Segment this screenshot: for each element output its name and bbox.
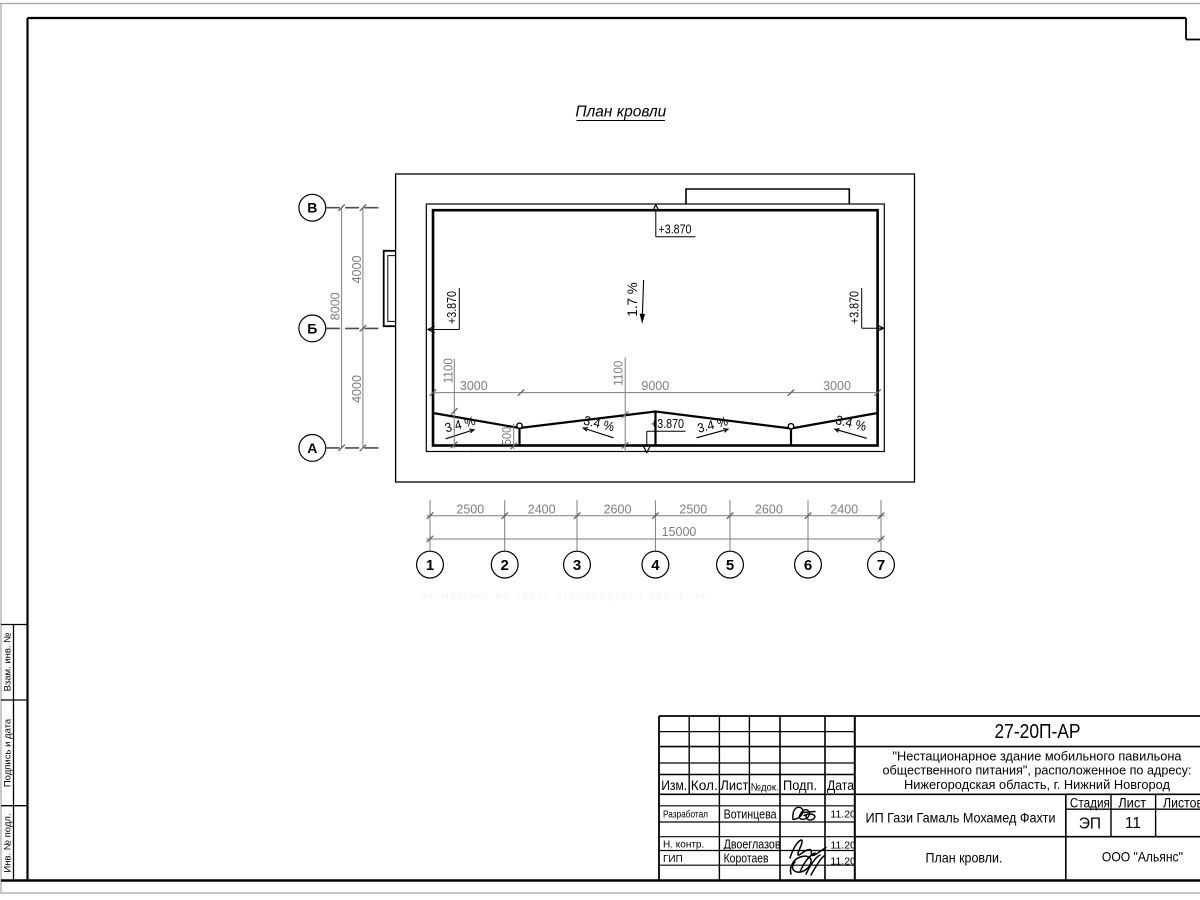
svg-text:2500: 2500 [679,502,707,516]
svg-text:Н. контр.: Н. контр. [663,839,704,850]
svg-text:9000: 9000 [641,379,669,393]
svg-text:ИП Гази Гамаль Мохамед Фахти: ИП Гази Гамаль Мохамед Фахти [866,811,1056,826]
svg-text:11: 11 [1125,815,1141,832]
svg-text:размещено на сайте стройпортал: размещено на сайте стройпортала проектов [420,591,707,602]
svg-text:общественного питания", распол: общественного питания", расположенное по… [883,763,1192,778]
svg-text:4: 4 [651,557,660,574]
svg-text:1100: 1100 [612,361,626,386]
svg-text:1100: 1100 [442,358,456,383]
svg-text:6: 6 [804,557,812,574]
svg-text:5: 5 [726,557,734,574]
svg-text:"Нестационарное здание мобильн: "Нестационарное здание мобильного павиль… [893,748,1183,763]
svg-text:2600: 2600 [604,502,632,516]
svg-text:План кровли.: План кровли. [926,850,1003,866]
svg-text:ООО "Альянс": ООО "Альянс" [1102,848,1183,864]
svg-text:Подпись и дата: Подпись и дата [3,718,14,787]
svg-text:+3.870: +3.870 [847,291,862,324]
svg-text:Взам. инв. №: Взам. инв. № [3,633,14,692]
svg-text:3: 3 [573,557,581,574]
svg-text:ГИП: ГИП [663,854,683,865]
svg-text:ЭП: ЭП [1079,815,1101,832]
svg-text:Лист: Лист [720,778,748,793]
svg-text:3000: 3000 [460,379,488,393]
svg-text:План кровли: План кровли [575,104,666,121]
svg-text:1.7 %: 1.7 % [625,282,640,317]
svg-text:Подп.: Подп. [783,778,817,793]
svg-text:2400: 2400 [830,502,858,516]
svg-text:27-20П-АР: 27-20П-АР [995,721,1081,743]
svg-text:11.20: 11.20 [830,840,856,852]
svg-text:2: 2 [501,557,509,574]
svg-text:Кол.: Кол. [691,778,718,793]
svg-text:+3.870: +3.870 [659,221,692,236]
svg-text:Листов: Листов [1163,795,1200,810]
svg-text:Дата: Дата [827,778,854,793]
svg-text:3000: 3000 [823,379,851,393]
svg-text:11.20: 11.20 [830,809,856,821]
svg-text:2600: 2600 [755,502,783,516]
svg-text:№док.: №док. [751,782,779,794]
svg-text:Лист: Лист [1118,795,1146,810]
svg-text:2400: 2400 [528,502,556,516]
svg-text:500: 500 [500,427,514,446]
svg-text:Разработал: Разработал [663,808,708,820]
svg-text:1: 1 [426,557,434,574]
svg-text:7: 7 [877,557,885,574]
svg-text:Инв. № подл.: Инв. № подл. [3,813,14,872]
svg-text:Нижегородская область, г. Нижн: Нижегородская область, г. Нижний Новгоро… [904,777,1170,792]
svg-text:11.20: 11.20 [830,855,856,867]
svg-text:+3.870: +3.870 [444,291,459,324]
svg-text:Вотинцева: Вотинцева [724,807,778,822]
svg-text:Двоеглазов: Двоеглазов [724,836,781,851]
svg-text:2500: 2500 [456,502,484,516]
svg-text:+3.870: +3.870 [651,416,684,431]
svg-text:Стадия: Стадия [1070,795,1110,810]
svg-text:Изм.: Изм. [661,778,687,793]
svg-text:4000: 4000 [350,256,364,284]
svg-text:А: А [307,440,317,456]
svg-text:4000: 4000 [350,375,364,403]
svg-text:8000: 8000 [329,292,343,320]
svg-text:В: В [307,200,317,216]
svg-text:15000: 15000 [662,525,697,539]
svg-text:Коротаев: Коротаев [724,851,769,866]
svg-text:Б: Б [307,320,317,336]
